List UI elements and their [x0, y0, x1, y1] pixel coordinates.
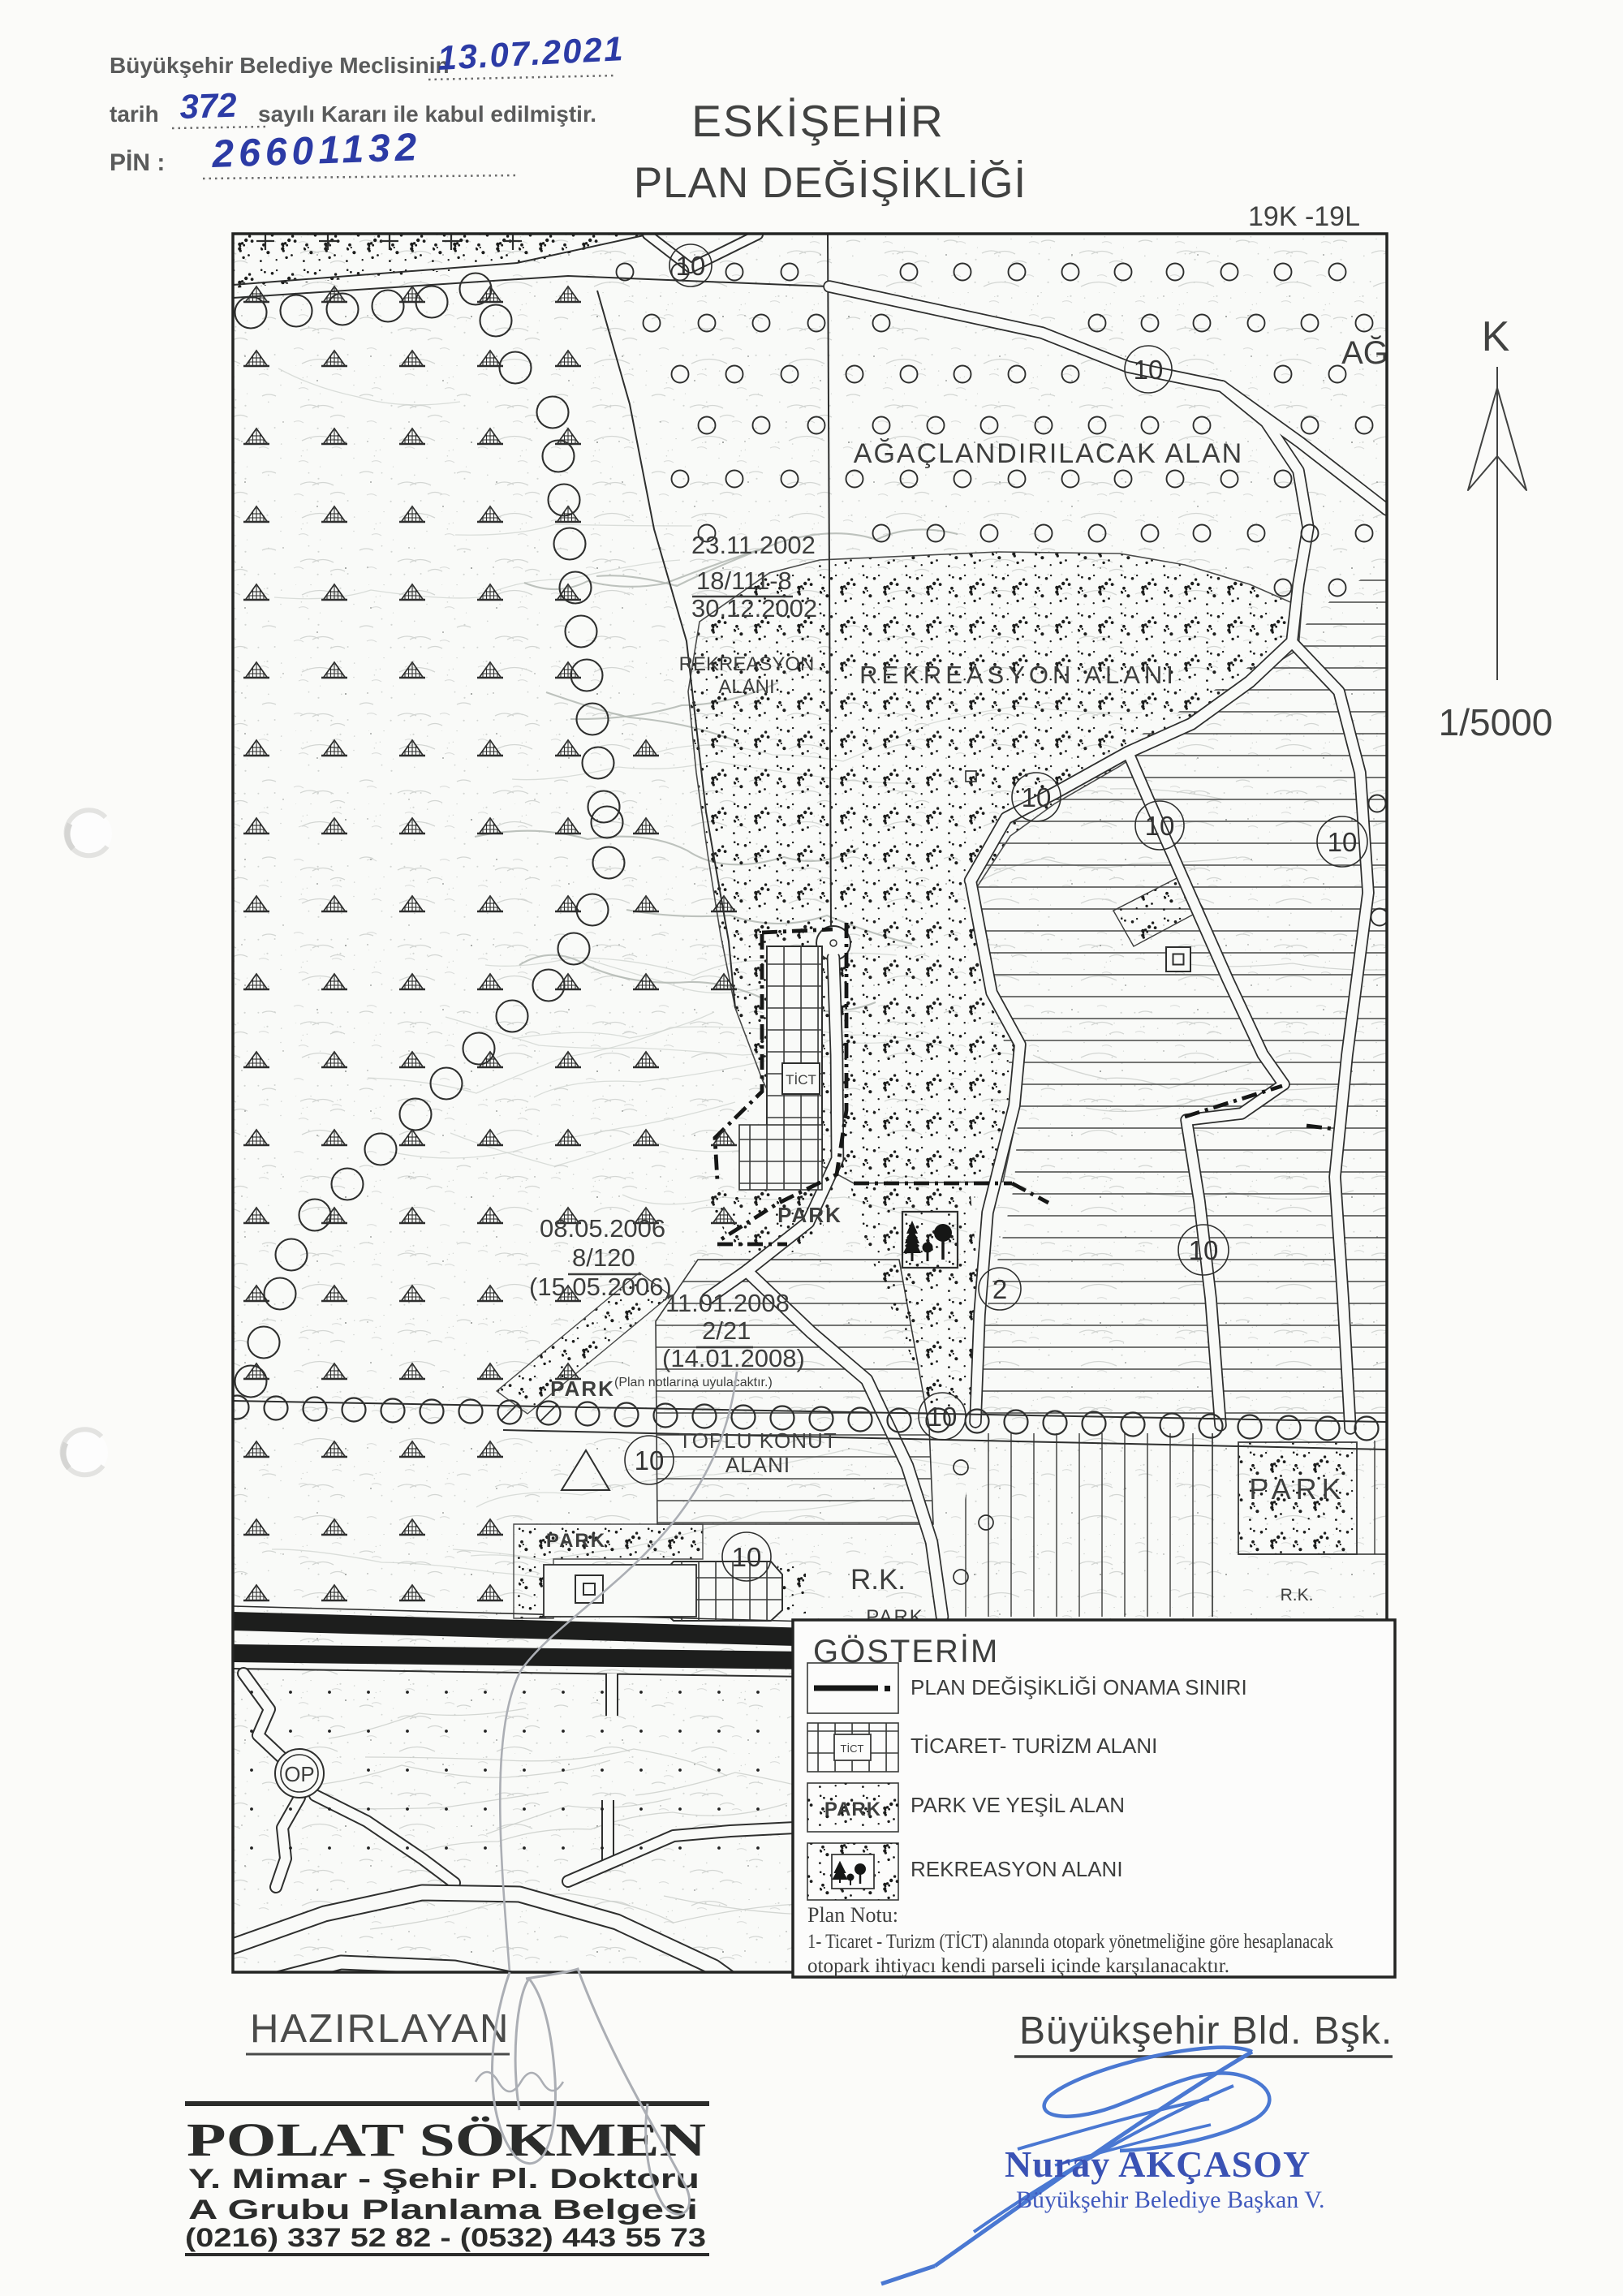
svg-text:(Plan notlarına uyulacaktır.): (Plan notlarına uyulacaktır.) — [614, 1376, 773, 1389]
svg-text:REKREASYON ALANI: REKREASYON ALANI — [911, 1857, 1123, 1881]
svg-text:PİN :: PİN : — [110, 149, 165, 176]
svg-text:08.05.2006: 08.05.2006 — [540, 1214, 665, 1243]
svg-text:30.12.2002: 30.12.2002 — [691, 594, 817, 622]
svg-text:TOPLU KONUT: TOPLU KONUT — [678, 1428, 837, 1453]
svg-text:PARK: PARK — [1249, 1472, 1345, 1506]
svg-text:Büyükşehir Bld. Bşk.: Büyükşehir Bld. Bşk. — [1019, 2010, 1393, 2053]
svg-text:(14.01.2008): (14.01.2008) — [662, 1344, 805, 1372]
svg-text:10: 10 — [928, 1402, 958, 1432]
svg-text:PARK: PARK — [777, 1203, 842, 1227]
svg-text:ALANI: ALANI — [718, 676, 774, 698]
svg-text:TİCT: TİCT — [841, 1742, 864, 1755]
svg-text:23.11.2002: 23.11.2002 — [691, 531, 816, 559]
svg-text:2/21: 2/21 — [702, 1316, 751, 1345]
svg-text:10: 10 — [635, 1445, 665, 1475]
svg-text:10: 10 — [732, 1542, 762, 1572]
svg-text:PLAN DEĞİŞİKLİĞİ: PLAN DEĞİŞİKLİĞİ — [634, 159, 1027, 207]
svg-text:R.K.: R.K. — [1281, 1586, 1314, 1605]
svg-text:PARK: PARK — [546, 1530, 606, 1552]
svg-text:10: 10 — [1189, 1235, 1219, 1265]
svg-text:sayılı Kararı ile kabul edilmi: sayılı Kararı ile kabul edilmiştir. — [258, 101, 596, 127]
svg-text:18/111-8: 18/111-8 — [696, 566, 792, 595]
svg-text:tarih: tarih — [110, 101, 159, 127]
svg-text:1/5000: 1/5000 — [1439, 701, 1553, 743]
svg-text:HAZIRLAYAN: HAZIRLAYAN — [250, 2007, 510, 2051]
svg-text:Büyükşehir Belediye Meclisinin: Büyükşehir Belediye Meclisinin — [110, 53, 450, 78]
svg-text:PARK VE YEŞİL ALAN: PARK VE YEŞİL ALAN — [911, 1793, 1125, 1817]
svg-text:10: 10 — [1328, 827, 1358, 857]
svg-text:REKREASYON ALANI: REKREASYON ALANI — [859, 661, 1177, 689]
svg-text:Büyükşehir Belediye Başkan V.: Büyükşehir Belediye Başkan V. — [1016, 2186, 1325, 2213]
svg-text:TİCARET- TURİZM ALANI: TİCARET- TURİZM ALANI — [911, 1734, 1157, 1758]
svg-text:Y. Mimar - Şehir Pl. Doktoru: Y. Mimar - Şehir Pl. Doktoru — [188, 2164, 700, 2195]
svg-text:Plan Notu:: Plan Notu: — [807, 1903, 898, 1927]
svg-text:Nuray AKÇASOY: Nuray AKÇASOY — [1005, 2143, 1311, 2185]
svg-text:OP: OP — [284, 1762, 315, 1786]
svg-text:PARK: PARK — [824, 1798, 881, 1820]
svg-text:1- Ticaret - Turizm (TİCT) ala: 1- Ticaret - Turizm (TİCT) alanında otop… — [807, 1931, 1333, 1953]
svg-text:(0216) 337 52 82 - (0532) 443: (0216) 337 52 82 - (0532) 443 55 73 — [185, 2223, 706, 2252]
svg-text:TİCT: TİCT — [786, 1072, 816, 1088]
svg-text:10: 10 — [676, 251, 706, 281]
svg-text:2: 2 — [992, 1274, 1007, 1304]
svg-text:372: 372 — [179, 86, 238, 126]
svg-text:ALANI: ALANI — [725, 1453, 790, 1477]
svg-text:AĞAÇLANDIRILACAK ALAN: AĞAÇLANDIRILACAK ALAN — [854, 438, 1243, 469]
svg-text:(15.05.2006): (15.05.2006) — [529, 1273, 672, 1301]
svg-text:AĞ: AĞ — [1341, 334, 1388, 371]
svg-text:11.01.2008: 11.01.2008 — [665, 1289, 790, 1317]
svg-text:10: 10 — [1145, 811, 1175, 841]
svg-text:ESKİŞEHİR: ESKİŞEHİR — [691, 96, 944, 146]
svg-text:8/120: 8/120 — [572, 1243, 635, 1272]
svg-text:otopark ihtiyacı kendi parse: otopark ihtiyacı kendi parseli içinde ka… — [807, 1955, 1229, 1977]
svg-text:POLAT SÖKMEN: POLAT SÖKMEN — [187, 2113, 706, 2166]
svg-text:K: K — [1482, 313, 1510, 360]
svg-text:PLAN DEĞİŞİKLİĞİ ONAMA SINIRI: PLAN DEĞİŞİKLİĞİ ONAMA SINIRI — [911, 1675, 1247, 1699]
svg-text:A Grubu Planlama Belgesi: A Grubu Planlama Belgesi — [188, 2195, 698, 2225]
svg-text:26601132: 26601132 — [211, 126, 423, 176]
svg-text:PARK: PARK — [550, 1376, 615, 1401]
svg-text:19K -19L: 19K -19L — [1248, 201, 1360, 232]
svg-text:R.K.: R.K. — [850, 1564, 906, 1596]
svg-text:10: 10 — [1134, 355, 1164, 385]
svg-text:10: 10 — [1022, 782, 1052, 812]
svg-text:REKREASYON: REKREASYON — [679, 653, 815, 675]
